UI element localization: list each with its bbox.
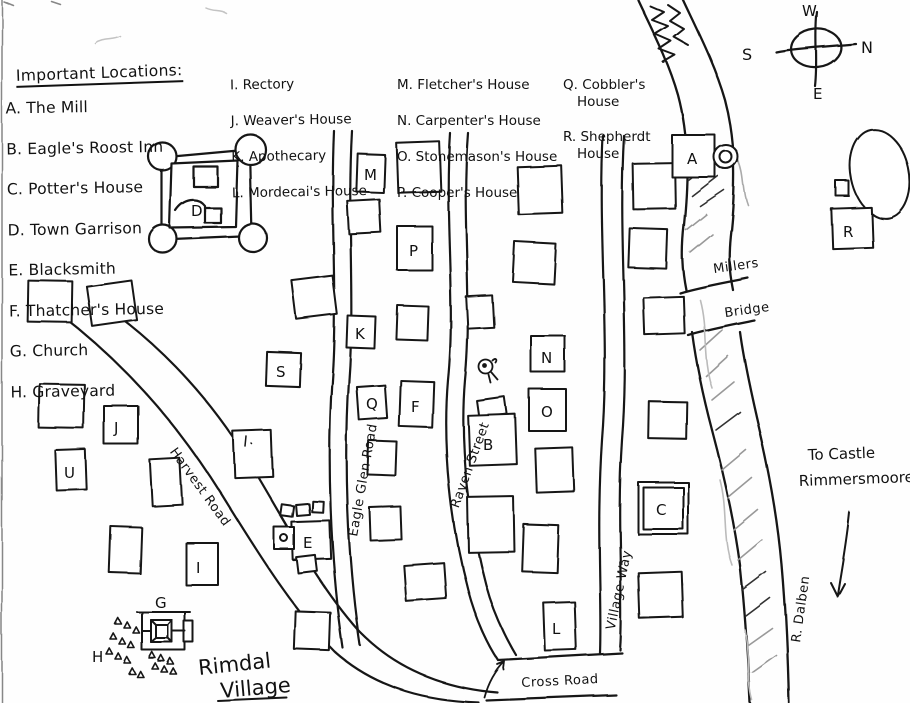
building-rectory [186,543,218,585]
river-name-label: R. Dalben [789,575,813,644]
castle-note-line1: To Castle [807,444,876,464]
compass-rose [776,12,856,86]
building-letter-thatcher: F [411,398,420,416]
building-letter-garrison: D [191,202,203,220]
river-rapids-scribble [668,5,688,45]
legend-item: K. Apothecary [231,147,386,167]
building-letter-rectory: I [196,559,200,577]
graveyard-letter: H [92,648,103,666]
legend-item: G. Church [10,339,180,363]
bridge-label-millers: Millers [712,256,759,277]
legend-item: E. Blacksmith [8,258,178,282]
bridge-edge [688,320,754,335]
compass-label-s: S [742,45,752,64]
building [233,430,273,477]
building [404,563,446,602]
legend-item: J. Weaver's House [231,111,386,131]
building [628,228,667,268]
road-label-cross: Cross Road [521,672,599,691]
well-dot [484,365,487,368]
garrison-room [194,167,218,187]
legend-item: R. Shepherdt House [563,129,651,162]
compass-label-n: N [861,38,873,57]
building-letter-potter: C [656,501,666,519]
garrison-tower [239,224,267,252]
village-well [479,360,498,383]
bridge-edge [680,278,748,293]
hatch-stroke [686,214,712,252]
legend-item: B. Eagle's Roost Inn [6,136,176,160]
scan-smudge [96,8,226,44]
building [466,295,494,328]
building [643,296,684,334]
castle-note-line2: Rimmersmoore [799,468,910,490]
legend-item: D. Town Garrison [7,217,177,241]
building [468,497,515,553]
legend-item: P. Cooper's House [397,185,572,202]
cross-road-edge [486,695,616,700]
pencil-squiggle [738,160,748,205]
pencil-squiggle [720,480,732,565]
building-letter-shepherd: R [843,223,853,241]
building-letter-apothecary: K [355,325,366,343]
building-letter-stonemason: O [541,403,553,421]
blacksmith-forge [281,535,288,542]
building [535,447,574,492]
legend-column-4: Q. Cobbler's House R. Shepherdt House [563,58,651,181]
legend-column-2: I. Rectory J. Weaver's House K. Apotheca… [230,56,388,222]
building [369,506,401,540]
compass-label-e: E [813,85,822,103]
building [292,276,337,320]
legend-column-1: A. The Mill B. Eagle's Roost Inn C. Pott… [5,77,181,423]
building-letter-mill: A [687,150,698,168]
building-letter-cobbler: Q [366,395,378,413]
building [513,242,556,284]
legend-column-3: M. Fletcher's House N. Carpenter's House… [397,58,572,221]
building-letter-s: S [276,363,286,381]
building [294,611,330,650]
legend-item: L. Mordecai's House [232,183,387,203]
compass-label-w: W [802,2,817,20]
church-tower-inner [156,625,168,638]
church-letter: G [155,594,167,612]
blacksmith-shed [280,504,293,517]
building [522,524,559,572]
compass-needle-vertical [815,12,817,86]
legend-item: I. Rectory [230,75,385,95]
hatch-stroke [742,572,770,616]
blacksmith-shed [312,501,324,513]
building [649,402,688,440]
legend-item: N. Carpenter's House [397,113,572,130]
hand-drawn-village-map: A R D S M P K Q F N O B J U I C L E G H … [0,0,910,703]
blacksmith-shed [296,555,317,573]
church [137,612,193,650]
hatch-stroke [748,628,776,672]
legend-item: A. The Mill [5,96,175,120]
hatch-stroke [716,412,740,430]
building [638,571,683,618]
bridge-label-bridge: Bridge [724,300,771,321]
building-letter-carpenter: N [541,349,552,367]
building-letter-u: U [64,464,75,482]
building [836,181,849,196]
building [396,305,428,340]
river-left-bank [692,332,750,703]
building-letter-weaver: J [113,419,118,437]
castle-arrow [830,512,849,596]
legend-item: M. Fletcher's House [397,77,572,94]
garrison-room [205,208,221,223]
scan-smudge [4,2,61,6]
mill-wheel-hub [720,151,732,163]
legend-item: C. Potter's House [7,177,177,201]
road-label-village-way: Village Way [604,549,636,631]
building-letter-cooper: P [409,242,418,260]
building-letter-mordecai: L [552,620,561,638]
pencil-squiggle [700,300,712,388]
legend-item: O. Stonemason's House [397,149,572,166]
legend-item: H. Graveyard [10,379,180,403]
legend-item: F. Thatcher's House [9,298,179,322]
building [109,526,142,573]
blacksmith-shed [296,503,310,515]
legend-item: Q. Cobbler's House [563,77,651,110]
village-way-edge [599,136,605,653]
building-letter-blacksmith: E [303,534,312,552]
